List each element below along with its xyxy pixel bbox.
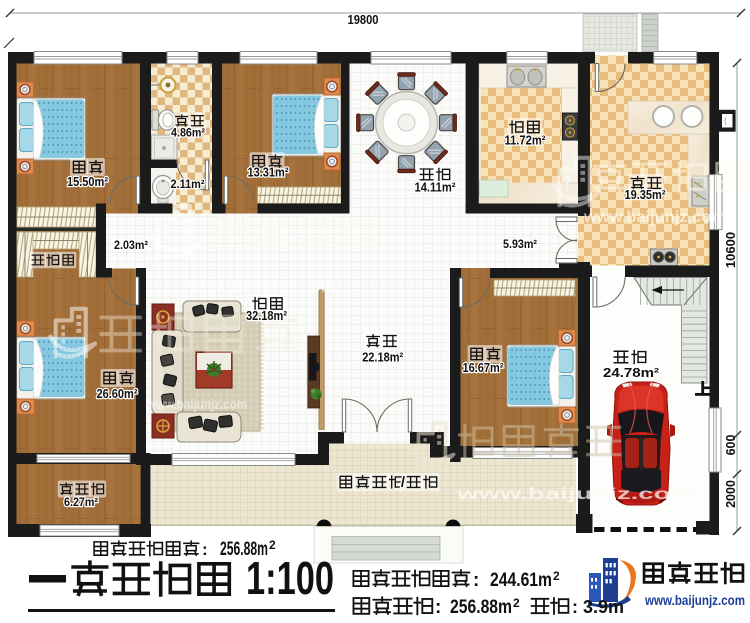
svg-text:6.27m²: 6.27m² [64,495,98,509]
svg-text:4.86m²: 4.86m² [171,126,205,140]
svg-text:11.72m²: 11.72m² [505,134,546,148]
svg-text:19.35m²: 19.35m² [625,188,666,202]
svg-text:10600: 10600 [723,232,738,268]
svg-text:32.18m²: 32.18m² [246,309,287,323]
svg-text:www.baijunjz.com: www.baijunjz.com [187,279,336,296]
svg-text:24.78m²: 24.78m² [603,365,660,380]
svg-text:15.50m²: 15.50m² [67,175,108,189]
svg-text:13.31m²: 13.31m² [248,166,289,180]
svg-text:www.baijunjz.com: www.baijunjz.com [146,397,247,412]
svg-text:www.baijunjz.com: www.baijunjz.com [583,209,726,226]
svg-text:14.11m²: 14.11m² [415,181,456,195]
svg-text:www.baijunjz.com: www.baijunjz.com [644,592,745,608]
svg-text:: 3.9m: : 3.9m [572,596,624,617]
svg-text:2.11m²: 2.11m² [171,177,205,191]
svg-text:1:100: 1:100 [246,552,334,604]
svg-text::: : [202,540,208,559]
svg-text:2: 2 [513,596,520,610]
svg-text::: : [435,597,441,618]
svg-text:2.03m²: 2.03m² [114,238,148,252]
svg-text:2: 2 [553,569,560,583]
svg-text:26.60m²: 26.60m² [97,387,138,401]
svg-text:22.18m²: 22.18m² [362,351,403,365]
svg-text::: : [473,570,479,591]
svg-text:www.baijunjz.com: www.baijunjz.com [455,486,695,503]
svg-text:256.88m: 256.88m [450,597,512,618]
svg-text:19800: 19800 [348,12,379,27]
svg-text:244.61m: 244.61m [490,570,552,591]
svg-text:600: 600 [724,435,738,456]
svg-text:2000: 2000 [724,480,738,508]
svg-text:16.67m²: 16.67m² [463,361,504,375]
svg-text:5.93m²: 5.93m² [503,237,537,251]
svg-text:2: 2 [269,538,276,552]
